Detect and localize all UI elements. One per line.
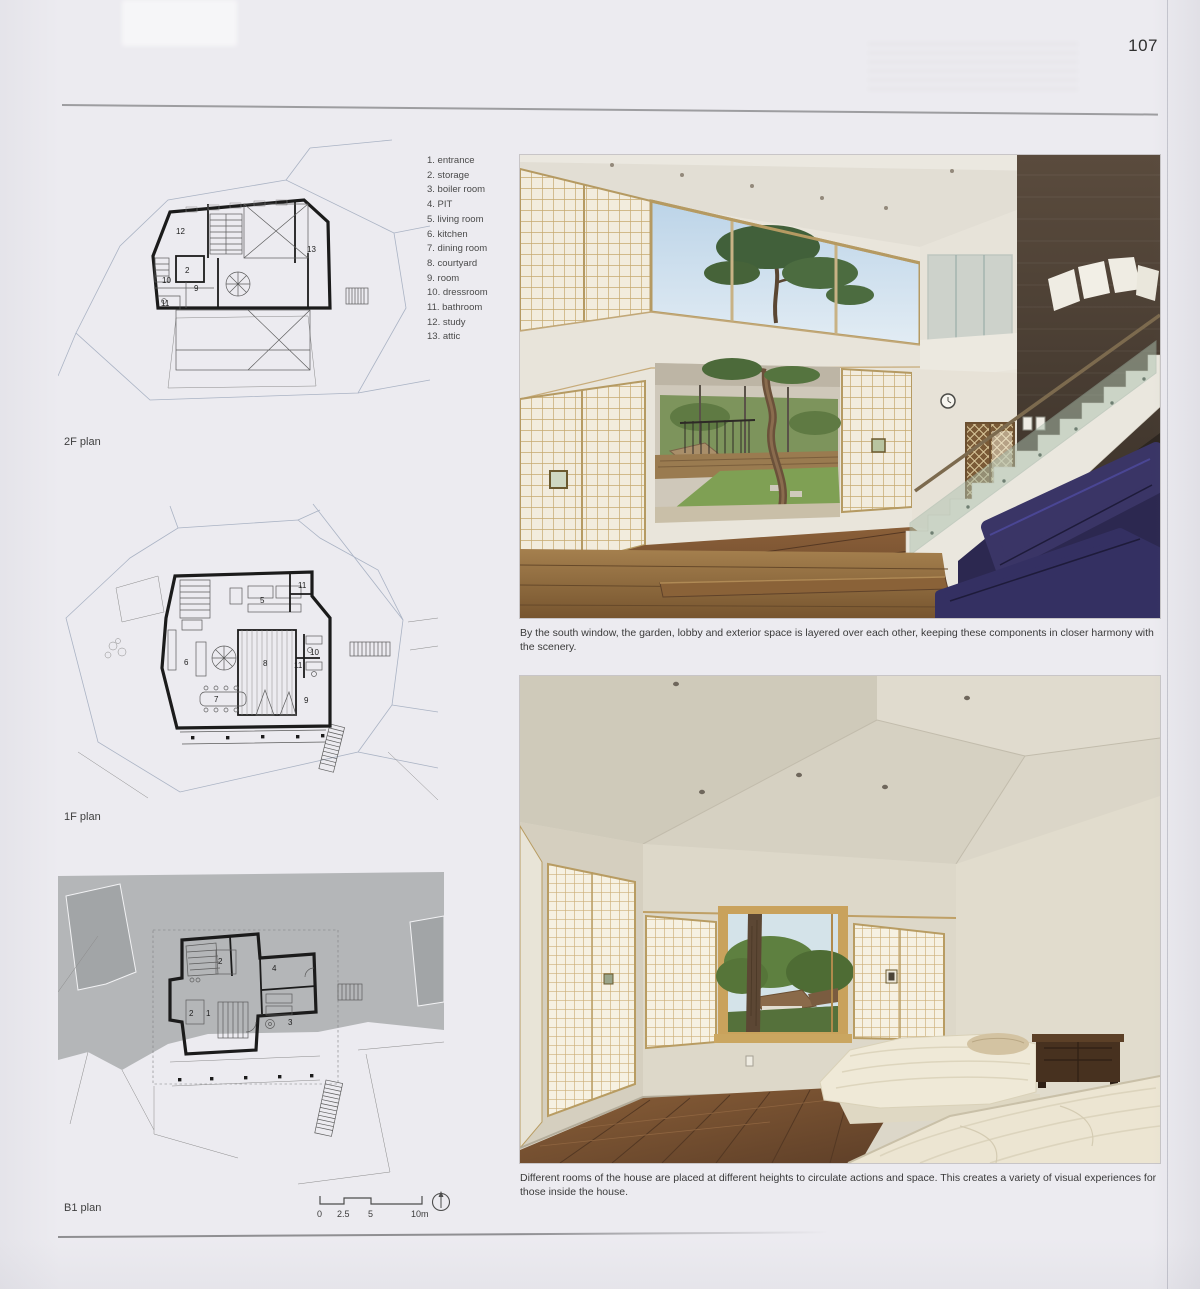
- spiral-stair: [212, 646, 236, 670]
- scan-highlight: [122, 0, 237, 46]
- bottom-rule: [58, 1231, 828, 1238]
- floor-plan-b1-label: B1 plan: [64, 1202, 101, 1214]
- tree-trunk: [746, 914, 762, 1032]
- exterior-stair: [346, 288, 368, 304]
- book-page: 107 1. entrance 2. storage 3. boiler roo…: [0, 0, 1200, 1289]
- mezzanine: [920, 255, 1017, 383]
- svg-text:10: 10: [162, 276, 171, 285]
- svg-text:11: 11: [298, 581, 307, 590]
- framed-picture: [550, 471, 567, 488]
- lower-shoji-panel: [520, 381, 645, 577]
- svg-text:2: 2: [218, 957, 223, 966]
- photo-living-room: [520, 155, 1160, 618]
- svg-text:12: 12: [176, 227, 185, 236]
- nightstand: [1032, 1034, 1124, 1088]
- photo-bedroom: [520, 676, 1160, 1163]
- deck-columns: [170, 1056, 320, 1086]
- right-shoji-screen: [854, 924, 944, 1040]
- svg-text:13: 13: [307, 245, 316, 254]
- svg-text:2: 2: [189, 1009, 194, 1018]
- svg-text:9: 9: [304, 696, 309, 705]
- photo-bedroom-caption: Different rooms of the house are placed …: [520, 1172, 1175, 1199]
- top-rule: [62, 104, 1158, 116]
- floor-plan-2f-label: 2F plan: [64, 436, 101, 448]
- south-deck: [180, 730, 326, 744]
- svg-text:2.5: 2.5: [337, 1209, 350, 1219]
- floor-plan-b1: 2 4 2 1 3: [58, 872, 444, 1194]
- svg-text:8: 8: [263, 659, 268, 668]
- svg-text:5: 5: [260, 596, 265, 605]
- spiral-stair: [226, 272, 250, 296]
- floor-plan-2f: 12 2 10 9 11 13: [58, 138, 430, 438]
- bedroom-window: [714, 906, 854, 1043]
- site-context: [58, 872, 444, 1184]
- scale-bar: 0 2.5 5 10m: [314, 1186, 460, 1222]
- stair-1f: [180, 580, 210, 630]
- north-arrow-icon: [433, 1191, 450, 1211]
- svg-text:5: 5: [368, 1209, 373, 1219]
- courtyard-deck: [238, 630, 296, 715]
- stair-2f: [210, 214, 242, 254]
- svg-text:3: 3: [288, 1018, 293, 1027]
- svg-text:1: 1: [206, 1009, 211, 1018]
- svg-text:7: 7: [214, 695, 219, 704]
- svg-text:0: 0: [317, 1209, 322, 1219]
- pillow: [967, 1033, 1029, 1055]
- wall-outlet: [746, 1056, 753, 1066]
- svg-text:10m: 10m: [411, 1209, 429, 1219]
- svg-text:10: 10: [310, 648, 319, 657]
- void-cross: [244, 204, 308, 258]
- svg-text:11: 11: [161, 299, 170, 308]
- svg-text:11: 11: [294, 661, 303, 670]
- dining-table: [200, 686, 246, 712]
- svg-text:9: 9: [194, 284, 199, 293]
- site-stair: [315, 1080, 343, 1136]
- svg-text:6: 6: [184, 658, 189, 667]
- sliding-shoji-door: [842, 369, 912, 512]
- svg-text:4: 4: [272, 964, 277, 973]
- site-boundary: [58, 140, 430, 400]
- light-switch: [1023, 417, 1032, 430]
- svg-text:2: 2: [185, 266, 190, 275]
- page-number: 107: [1096, 36, 1158, 56]
- floor-plan-1f: 5 11 6 8 10 11 7 9: [58, 500, 438, 812]
- platform-bench: [520, 549, 955, 618]
- photo-living-room-caption: By the south window, the garden, lobby a…: [520, 627, 1168, 654]
- floor-plan-1f-label: 1F plan: [64, 811, 101, 823]
- window-sill: [714, 1034, 852, 1043]
- roof-below: [176, 310, 310, 370]
- courtyard-view: [655, 358, 841, 523]
- building-walls-2f: [153, 200, 330, 310]
- ink-bleed-through: [868, 38, 1078, 90]
